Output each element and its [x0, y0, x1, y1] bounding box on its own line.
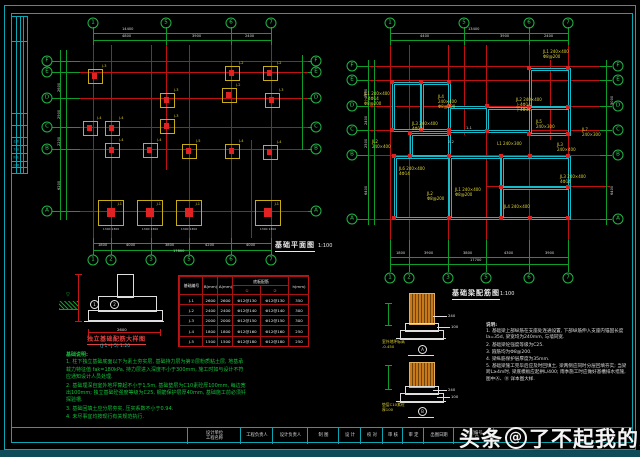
beam-annotation: JL3240×400 [557, 143, 576, 153]
column-hatch [409, 293, 435, 325]
dim-text: 5000 [610, 96, 614, 105]
dimension-line-horizontal [600, 130, 612, 131]
dim-tick [75, 321, 82, 322]
detail-b-label: B [418, 407, 427, 416]
dimension-line-vertical [390, 27, 391, 45]
green-dim-bar [388, 303, 389, 325]
axis-bubble: B [347, 150, 358, 161]
dim-text: 4300 [504, 251, 513, 255]
column-hatch [409, 362, 435, 388]
table-header-cell: A(mm) [217, 276, 233, 295]
axis-bubble: F [347, 61, 358, 72]
beam-annotation-line: 4Φ14 [412, 127, 438, 132]
dimension-line-horizontal [357, 130, 368, 131]
table-cell: J-5 [179, 336, 203, 347]
beam-annotation: JL3 240×4004Φ14 [412, 122, 438, 132]
column-dot [408, 131, 412, 135]
table-cell: 1500 [202, 336, 218, 347]
beam-annotation-line: 4Φ14 [399, 172, 425, 177]
note-item: 1. 柱下独立基础底面以下为素土夯实层, 基础持力层为第②层粉质粘土层, 地基承… [66, 359, 248, 381]
ground-level-mark: ▽ [66, 292, 70, 298]
beam-annotation-line: Φ8@200 [455, 193, 481, 198]
axis-bubble: E [347, 75, 358, 86]
dimension-line-vertical [409, 240, 410, 272]
dim-value: 240 [448, 387, 455, 392]
dimension-line-horizontal [600, 106, 612, 107]
beam-annotation-line: 240×400 [557, 148, 576, 153]
dim-text: 2-2 [448, 140, 454, 144]
table-cell: 250 [288, 336, 309, 347]
column-dot [408, 154, 412, 158]
dim-text: 6400 [610, 186, 614, 195]
green-dim-tick [385, 365, 392, 366]
beam-annotation-line: JL4 240×400 [504, 205, 530, 210]
dimension-line-horizontal [357, 66, 368, 67]
green-dim-tick [385, 325, 392, 326]
footing-schedule-table: 基础编号B(mm)A(mm)h(mm)底板配筋①②J-126002600Φ12@… [178, 275, 309, 347]
column-dot [566, 216, 570, 220]
title-block-label: 审 核 [388, 433, 398, 439]
dim-line-bottom [88, 332, 161, 333]
beam-annotation-line: L1 240×300 [497, 142, 522, 147]
beam-annotation: JL7240×300 [582, 128, 601, 138]
column-dot [528, 216, 532, 220]
column-dot [566, 154, 570, 158]
dimension-line-horizontal [600, 155, 612, 156]
table-cell: Φ12@180 [260, 336, 289, 347]
column-dot [499, 154, 503, 158]
title-block-cell: 工程负责人 [240, 428, 273, 444]
column-dot [528, 154, 532, 158]
detail-b-underline [408, 417, 434, 418]
cad-drawing-sheet: 会 签专 业姓 名日 期 J-3J-2J-2J-3J-2J-3J-4J-4J-3… [0, 0, 640, 457]
note-item: 4. 未尽事宜均按现行有关规范执行. [66, 414, 248, 421]
beam-annotation: JL1 240×400Φ8@200 [543, 50, 569, 60]
footing-baseline [84, 321, 164, 322]
column-dot [447, 80, 451, 84]
axis-bubble: 2 [404, 273, 415, 284]
green-dim-tick [385, 389, 392, 390]
dim-text: 17700 [470, 258, 481, 262]
beam-annotation: JL2240×400 [372, 140, 391, 150]
beam-notes: 说明: 1. 基础梁上部纵筋在支座处连通设置, 下部纵筋伸入支座内锚固长度 la… [486, 323, 628, 384]
axis-bubble: D [613, 101, 624, 112]
dim-value: 2600 [117, 327, 127, 332]
note-item: 5. 基础梁施工完毕后应及时回填土, 梁两侧应同时分层回填夯实; 当梁跨L≥4m… [486, 364, 628, 383]
column-dot [419, 80, 423, 84]
dim-text: 3800 [463, 251, 472, 255]
dim-tick [75, 274, 82, 275]
axis-bubble: A [613, 214, 624, 225]
axis-bubble: C [347, 125, 358, 136]
beam-annotation-line: 4Φ14 [560, 180, 586, 185]
dim-tick [160, 329, 161, 336]
axis-line-horizontal [362, 80, 610, 81]
beam-annotation: JL2 240×400上4Φ14下4Φ14 [516, 98, 542, 112]
axis-bubble: 5 [481, 273, 492, 284]
column-dot [390, 80, 394, 84]
dimension-line-horizontal [390, 264, 568, 265]
title-block-label: 审 定 [409, 433, 419, 439]
rebar-callout-1: 1 [90, 300, 99, 309]
column-dot [447, 216, 451, 220]
ground-hatch [59, 301, 78, 310]
dimension-line-horizontal [390, 33, 568, 34]
footing-detail-subtitle: (J-1~J-5) 1:20 [100, 344, 130, 349]
dim-value: 100 [451, 394, 458, 399]
dim-leader [433, 390, 447, 391]
dimension-line-horizontal [600, 80, 612, 81]
title-block-cell: 出图日期 [423, 428, 454, 444]
detail-a-label: A [418, 345, 427, 354]
axis-bubble: 1 [385, 18, 396, 29]
dim-leader [437, 327, 450, 328]
foundation-notes-items: 1. 柱下独立基础底面以下为素土夯实层, 基础持力层为第②层粉质粘土层, 地基承… [66, 359, 248, 421]
note-item: 3. 基础回填土应分层夯实, 压实系数不小于0.94. [66, 406, 248, 413]
axis-bubble: 7 [563, 18, 574, 29]
dimension-line-horizontal [600, 219, 612, 220]
dimension-line-vertical [529, 27, 530, 45]
column-dot [527, 132, 531, 136]
dim-leader [433, 316, 447, 317]
title-block-label: 工程负责人 [246, 433, 267, 439]
dimension-line-horizontal [390, 40, 568, 41]
note-item: 2. 基础埋深自室外地坪算起不小于1.5m, 基础垫层为C10素砼厚100mm,… [66, 383, 248, 405]
beam-annotation: JL1 240×400Φ8@200 [455, 188, 481, 198]
title-block-cell: 设 计 [338, 428, 361, 444]
beam-annotation: JL3 240×4004Φ14 [560, 175, 586, 185]
column-dot [566, 132, 570, 136]
dim-line-vertical [78, 274, 79, 322]
dim-leader [437, 397, 450, 398]
column-dot [485, 104, 489, 108]
axis-line-horizontal [362, 66, 610, 67]
watermark-at-icon: @ [505, 427, 527, 449]
beam-notes-items: 1. 基础梁上部纵筋在支座处连通设置, 下部纵筋伸入支座内锚固长度 la=35d… [486, 329, 628, 383]
dimension-line-vertical [568, 27, 569, 45]
right-plan-scale: 1:100 [500, 291, 514, 297]
dimension-line-vertical [486, 240, 487, 272]
beam-annotation: JL4240×400Φ8@200 [438, 95, 457, 109]
axis-bubble: 1 [385, 273, 396, 284]
green-dim-tick [385, 303, 392, 304]
dim-value: 240 [448, 313, 455, 318]
dim-value: 100 [451, 324, 458, 329]
beam-annotation-line: 240×300 [536, 125, 555, 130]
table-cell: Φ12@180 [232, 336, 261, 347]
left-plan-title: 基础平面图 [275, 240, 315, 252]
beam-annotation: JL5240×300 [536, 120, 555, 130]
beam-annotation-line: 240×300 [582, 133, 601, 138]
beam-annotation: L1 240×300 [497, 142, 522, 147]
dim-text: 1-1 [466, 126, 472, 130]
column-dot [499, 185, 503, 189]
column-dot [392, 216, 396, 220]
beam-annotation: JL2Φ8@200 [427, 192, 444, 202]
column-stub-outline [117, 274, 134, 298]
dim-text: 3900 [545, 251, 554, 255]
dim-text: 2400 [544, 34, 553, 38]
axis-bubble: 3 [443, 273, 454, 284]
left-plan-scale: 1:100 [318, 243, 332, 249]
axis-bubble: E [613, 75, 624, 86]
table-cell: 1500 [217, 336, 233, 347]
title-block-cell: 制 图 [307, 428, 339, 444]
beam-annotation: JL6 240×4004Φ14 [399, 167, 425, 177]
axis-bubble: B [613, 150, 624, 161]
title-block-label: 制 图 [319, 433, 329, 439]
title-block-cell: 审 定 [402, 428, 424, 444]
dimension-line-vertical [568, 240, 569, 272]
dimension-line-vertical [464, 27, 465, 45]
dimension-line-vertical [529, 240, 530, 272]
title-block-cell: 审 核 [382, 428, 403, 444]
axis-bubble: F [613, 61, 624, 72]
watermark-brand: 头条 [459, 423, 503, 453]
axis-bubble: 6 [524, 18, 535, 29]
title-block-label: 设 计 [345, 433, 355, 439]
axis-bubble: 6 [524, 273, 535, 284]
dimension-line-horizontal [357, 155, 368, 156]
dim-text: 6400 [364, 186, 368, 195]
dim-text: 2400 [364, 116, 368, 125]
note-item: 3. 箍筋均为Φ8@200. [486, 350, 628, 356]
note-item: 4. 梁纵筋保护层厚度为35mm. [486, 357, 628, 363]
table-header-cell: h(mm) [288, 276, 309, 295]
axis-bubble: D [347, 101, 358, 112]
table-header-cell: B(mm) [202, 276, 218, 295]
title-block-label: 设计负责人 [280, 433, 301, 439]
column-dot [566, 66, 570, 70]
dimension-line-vertical [390, 240, 391, 272]
dim-text: 3900 [500, 34, 509, 38]
beam-annotation-line: Φ8@200 [364, 102, 390, 107]
right-plan-title: 基础梁配筋图 [452, 288, 500, 300]
dim-text: 3900 [424, 251, 433, 255]
axis-bubble: A [347, 214, 358, 225]
column-dot [447, 131, 451, 135]
beam-annotation-line: 下4Φ14 [516, 108, 542, 113]
detail-a-note-line2: -0.450 [382, 345, 394, 350]
footing-slab-outline [88, 310, 163, 321]
dimension-line-horizontal [357, 219, 368, 220]
title-block-cell: 校 对 [360, 428, 383, 444]
axis-bubble: C [613, 125, 624, 136]
foundation-notes: 基础说明: 1. 柱下独立基础底面以下为素土夯实层, 基础持力层为第②层粉质粘土… [66, 352, 248, 423]
beam-annotation: JL4 240×400 [504, 205, 530, 210]
beam-annotation-line: 240×400 [372, 145, 391, 150]
column-dot [392, 154, 396, 158]
beam-annotation-line: Φ8@200 [427, 197, 444, 202]
column-dot [447, 154, 451, 158]
rebar-callout-2: 2 [110, 300, 119, 309]
dimension-line-vertical [606, 60, 607, 225]
title-block-cell: 设计负责人 [272, 428, 308, 444]
title-block-label: 工程名称 [206, 436, 223, 442]
dim-text: 2500 [364, 139, 368, 148]
dimension-line-vertical [448, 240, 449, 272]
column-dot [527, 66, 531, 70]
title-block-cell: 设计单位工程名称 [187, 428, 241, 444]
title-block-label: 出图日期 [430, 433, 447, 439]
beam-annotation-line: Φ8@200 [438, 105, 457, 110]
green-dim-bar [388, 365, 389, 389]
title-block-label: 校 对 [367, 433, 377, 439]
column-dot [566, 105, 570, 109]
dim-text: 13400 [468, 27, 479, 31]
watermark-account: 了不起我的家 [529, 423, 640, 453]
column-dot [390, 128, 394, 132]
column-dot [485, 129, 489, 133]
watermark: 头条 @ 了不起我的家 [459, 423, 640, 453]
note-item: 1. 基础梁上部纵筋在支座处连通设置, 下部纵筋伸入支座内锚固长度 la=35d… [486, 329, 628, 341]
detail-b-note-line2: 厚100 [382, 408, 393, 413]
dim-text: 1800 [396, 251, 405, 255]
dimension-line-horizontal [600, 66, 612, 67]
dim-text: 2600 [364, 89, 368, 98]
beam-outline [410, 133, 451, 158]
dimension-line-vertical [368, 60, 369, 225]
column-dot [566, 185, 570, 189]
dimension-line-horizontal [357, 80, 368, 81]
detail-a-underline [408, 355, 434, 356]
beam-annotation-line: Φ8@200 [543, 55, 569, 60]
note-item: 2. 基础梁砼强度等级为C25. [486, 343, 628, 349]
dim-text: 4400 [420, 34, 429, 38]
column-dot [499, 216, 503, 220]
table-header-cell: 基础编号 [179, 276, 203, 295]
axis-bubble: 7 [563, 273, 574, 284]
